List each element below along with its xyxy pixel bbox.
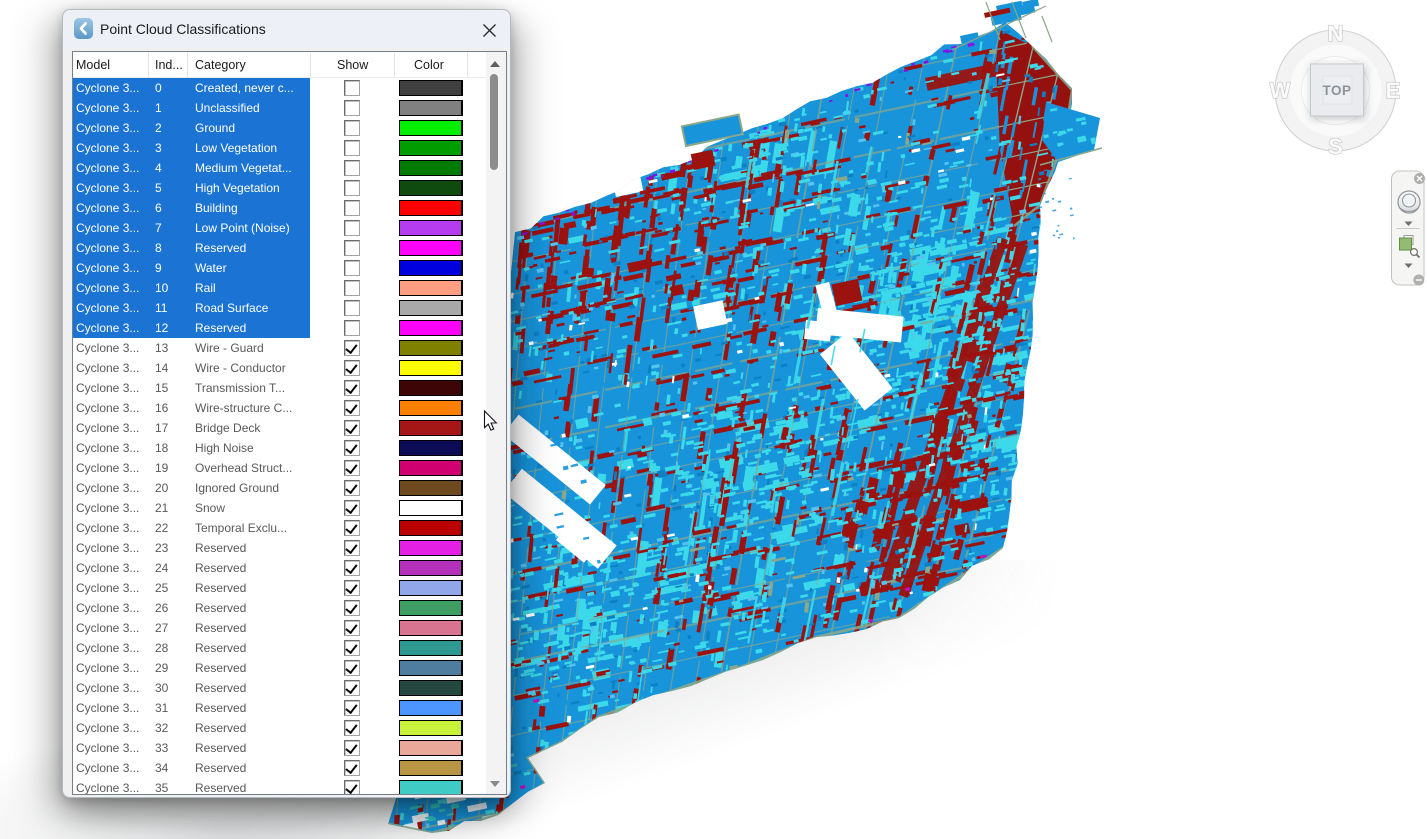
svg-text:TOP: TOP [1322,83,1351,98]
svg-text:W: W [1270,78,1291,103]
svg-text:E: E [1386,78,1401,103]
svg-text:N: N [1328,21,1344,46]
svg-text:S: S [1328,134,1343,159]
